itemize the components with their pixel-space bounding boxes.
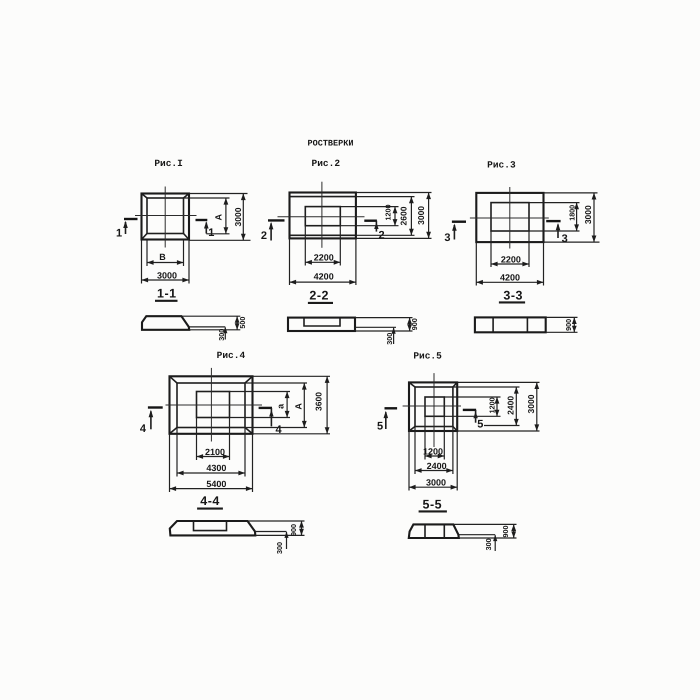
svg-text:300: 300: [385, 333, 394, 345]
svg-text:1800: 1800: [567, 205, 576, 221]
svg-text:500: 500: [238, 317, 247, 329]
svg-text:А: А: [214, 213, 224, 220]
svg-text:1: 1: [116, 228, 122, 240]
svg-text:900: 900: [410, 318, 419, 330]
svg-text:3000: 3000: [426, 477, 446, 487]
svg-text:Рис.3: Рис.3: [487, 160, 516, 171]
svg-text:2200: 2200: [314, 253, 334, 263]
svg-text:Рис.4: Рис.4: [217, 350, 246, 361]
svg-text:4200: 4200: [500, 273, 520, 283]
svg-text:3: 3: [444, 232, 450, 244]
svg-text:1-1: 1-1: [157, 287, 177, 301]
svg-text:3000: 3000: [583, 205, 593, 224]
svg-text:5400: 5400: [206, 479, 226, 489]
svg-text:5: 5: [477, 418, 483, 430]
svg-text:2400: 2400: [427, 461, 447, 471]
svg-text:1200: 1200: [384, 205, 393, 221]
svg-text:3000: 3000: [416, 206, 426, 225]
svg-text:5: 5: [377, 421, 383, 433]
svg-text:3600: 3600: [313, 392, 323, 411]
svg-text:Рис.2: Рис.2: [312, 158, 341, 169]
svg-text:1: 1: [208, 227, 214, 239]
svg-text:3000: 3000: [157, 271, 177, 281]
svg-text:2400: 2400: [505, 396, 515, 415]
svg-text:2-2: 2-2: [309, 289, 329, 303]
svg-text:300: 300: [275, 542, 284, 554]
svg-text:3: 3: [562, 233, 568, 245]
svg-text:3000: 3000: [526, 394, 536, 413]
svg-text:2200: 2200: [501, 254, 521, 264]
svg-text:2600: 2600: [398, 206, 408, 225]
svg-text:1200: 1200: [423, 446, 443, 456]
svg-text:4-4: 4-4: [200, 494, 220, 508]
svg-text:3000: 3000: [233, 207, 243, 226]
svg-text:1200: 1200: [487, 397, 496, 413]
svg-text:В: В: [159, 252, 166, 262]
svg-text:5-5: 5-5: [423, 497, 443, 511]
svg-text:а: а: [275, 403, 285, 409]
svg-text:4: 4: [140, 423, 147, 435]
svg-text:Рис.5: Рис.5: [413, 350, 442, 361]
svg-text:2: 2: [261, 230, 267, 242]
svg-text:РОСТВЕРКИ: РОСТВЕРКИ: [308, 139, 354, 149]
svg-text:300: 300: [217, 329, 226, 341]
svg-text:900: 900: [501, 526, 510, 538]
svg-text:900: 900: [564, 319, 573, 331]
svg-text:2100: 2100: [205, 447, 225, 457]
svg-text:300: 300: [484, 538, 493, 550]
svg-text:А: А: [293, 403, 303, 410]
svg-text:Рис.I: Рис.I: [154, 158, 183, 169]
svg-text:900: 900: [289, 524, 298, 536]
svg-text:4300: 4300: [206, 463, 226, 473]
svg-text:4200: 4200: [314, 272, 334, 282]
svg-text:3-3: 3-3: [503, 289, 523, 303]
